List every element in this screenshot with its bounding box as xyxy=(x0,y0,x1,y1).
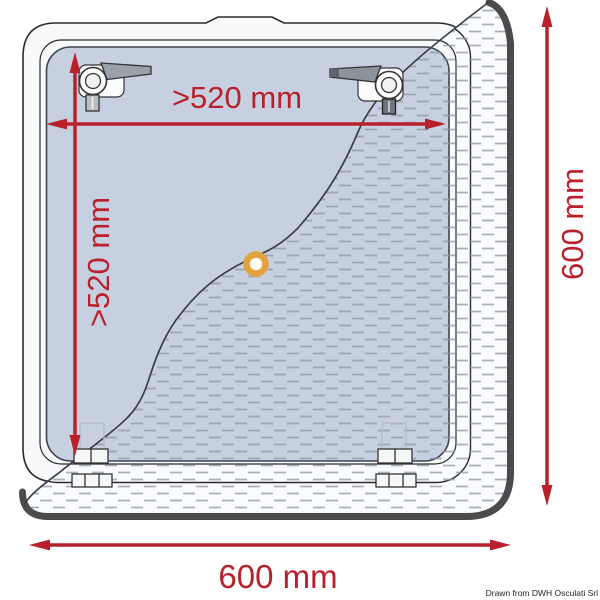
dimension-outer-width: 600 mm xyxy=(29,540,511,596)
attribution-text: Drawn from DWH Osculati Srl xyxy=(486,588,599,598)
dimension-arrow-icon xyxy=(29,540,50,551)
hatch-dimension-diagram: >520 mm >520 mm 600 mm 600 mm Drawn from… xyxy=(0,0,600,600)
diagram-canvas: >520 mm >520 mm 600 mm 600 mm Drawn from… xyxy=(0,0,600,600)
inner-width-label: >520 mm xyxy=(172,80,302,115)
hinge-base-icon xyxy=(376,474,416,487)
dimension-outer-height: 600 mm xyxy=(542,6,591,506)
grommet-icon xyxy=(247,255,266,274)
dimension-arrow-icon xyxy=(490,540,511,551)
outer-height-label: 600 mm xyxy=(555,168,590,280)
dimension-arrow-icon xyxy=(542,485,553,506)
dimension-arrow-icon xyxy=(542,6,553,27)
latch-lever-tip xyxy=(330,69,339,78)
hinge-base-icon xyxy=(72,474,112,487)
inner-height-label: >520 mm xyxy=(81,197,116,327)
outer-width-label: 600 mm xyxy=(218,558,337,595)
